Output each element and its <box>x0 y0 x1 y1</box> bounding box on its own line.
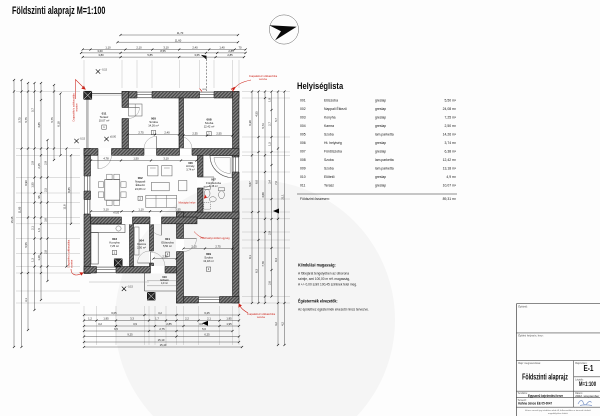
svg-text:95: 95 <box>37 195 41 198</box>
svg-text:24,08 m²: 24,08 m² <box>443 107 457 111</box>
svg-text:Terasz: Terasz <box>324 184 334 188</box>
svg-text:Földszinti alaprajz M=1:100: Földszinti alaprajz M=1:100 <box>12 5 105 17</box>
svg-text:008: 008 <box>300 158 306 162</box>
svg-text:-0,15: -0,15 <box>80 138 86 141</box>
svg-text:Mosógép helye: Mosógép helye <box>179 202 197 205</box>
svg-text:2,9: 2,9 <box>31 161 35 165</box>
svg-text:3,10: 3,10 <box>103 207 109 211</box>
svg-text:A terv szerzői jogi védelem al: A terv szerzői jogi védelem alatt áll, f… <box>525 409 591 412</box>
svg-text:010: 010 <box>300 175 306 179</box>
svg-text:vezetve: vezetve <box>259 78 268 81</box>
svg-text:6,38 m²: 6,38 m² <box>445 150 457 154</box>
svg-text:Kamra: Kamra <box>324 124 334 128</box>
svg-text:3,55: 3,55 <box>175 207 181 211</box>
svg-text:2,10: 2,10 <box>136 46 142 50</box>
svg-text:lam.parketta: lam.parketta <box>375 167 394 171</box>
svg-text:1,5: 1,5 <box>37 228 41 232</box>
svg-text:2,7: 2,7 <box>268 122 272 126</box>
svg-text:1,95: 1,95 <box>103 317 109 321</box>
svg-text:3,80: 3,80 <box>98 53 104 57</box>
svg-text:1,3: 1,3 <box>31 258 35 262</box>
svg-text:2,1: 2,1 <box>207 317 211 321</box>
svg-text:greslap: greslap <box>375 184 386 188</box>
svg-text:1,95: 1,95 <box>226 317 232 321</box>
svg-text:Káhna János ÉE 05-0047: Káhna János ÉE 05-0047 <box>518 400 552 405</box>
svg-text:3,3: 3,3 <box>130 317 134 321</box>
svg-text:lam.parketta: lam.parketta <box>375 133 394 137</box>
svg-text:3,9: 3,9 <box>133 322 137 326</box>
svg-text:vezetve: vezetve <box>71 259 74 268</box>
svg-text:3,6: 3,6 <box>199 322 203 326</box>
svg-text:005: 005 <box>300 133 306 137</box>
svg-text:vezetve: vezetve <box>76 103 79 112</box>
svg-text:3,2: 3,2 <box>158 311 162 315</box>
svg-text:1,10: 1,10 <box>138 207 144 211</box>
svg-text:greslap: greslap <box>375 116 386 120</box>
svg-text:5,75: 5,75 <box>18 117 22 123</box>
svg-text:007: 007 <box>300 150 306 154</box>
svg-text:Égéstermék elvezetők:: Égéstermék elvezetők: <box>298 298 338 304</box>
svg-text:15,40: 15,40 <box>160 343 167 347</box>
svg-text:13,18 m²: 13,18 m² <box>443 167 457 171</box>
svg-text:A főbejárat tengelyében az útk: A főbejárat tengelyében az útkorona <box>298 272 349 276</box>
svg-text:1,50: 1,50 <box>133 157 139 161</box>
svg-text:8,55: 8,55 <box>160 49 166 53</box>
svg-text:3,65: 3,65 <box>194 53 200 57</box>
svg-text:2,5: 2,5 <box>44 188 48 192</box>
svg-text:8,4: 8,4 <box>274 258 278 262</box>
svg-text:2,25: 2,25 <box>37 163 41 169</box>
svg-text:2,75: 2,75 <box>159 327 165 331</box>
svg-text:-0,15: -0,15 <box>127 286 133 289</box>
svg-text:5,55: 5,55 <box>24 242 28 248</box>
svg-text:5,7: 5,7 <box>31 108 35 112</box>
svg-text:1,9: 1,9 <box>268 98 272 102</box>
svg-text:7,78: 7,78 <box>261 261 265 267</box>
svg-text:1,40: 1,40 <box>219 46 225 50</box>
svg-text:greslap: greslap <box>375 99 386 103</box>
svg-text:6,85: 6,85 <box>67 187 71 193</box>
svg-text:Ht. helyiség: Ht. helyiség <box>324 141 342 145</box>
svg-text:001: 001 <box>300 99 306 103</box>
svg-text:11,85: 11,85 <box>18 206 22 213</box>
svg-text:004: 004 <box>300 124 306 128</box>
svg-text:4,9 m²: 4,9 m² <box>446 175 456 179</box>
svg-text:14,26 m²: 14,26 m² <box>443 133 457 137</box>
svg-text:2,50 m²: 2,50 m² <box>137 246 146 250</box>
svg-text:Előtető: Előtető <box>324 175 335 179</box>
svg-text:15,10: 15,10 <box>158 338 165 342</box>
svg-text:vezetve: vezetve <box>257 316 266 319</box>
svg-text:1,7: 1,7 <box>155 317 159 321</box>
svg-text:2,40: 2,40 <box>192 46 198 50</box>
svg-text:5,73: 5,73 <box>261 123 265 129</box>
svg-text:4,78: 4,78 <box>103 157 109 161</box>
svg-text:15,35: 15,35 <box>10 216 14 223</box>
svg-text:Kiindulási magasság:: Kiindulási magasság: <box>298 262 336 268</box>
svg-text:5,75: 5,75 <box>50 117 54 123</box>
svg-text:7,25 m²: 7,25 m² <box>110 244 119 248</box>
svg-text:4,68: 4,68 <box>261 192 265 198</box>
svg-text:4,55: 4,55 <box>255 111 259 117</box>
svg-text:5,85: 5,85 <box>147 53 153 57</box>
svg-text:12,42 m²: 12,42 m² <box>204 125 215 129</box>
svg-text:-0,15: -0,15 <box>102 68 108 71</box>
svg-text:2,35: 2,35 <box>192 132 198 136</box>
svg-text:1,5: 1,5 <box>268 142 272 146</box>
svg-text:szintje, ami 100,00 m réf. mag: szintje, ami 100,00 m réf. magasság, <box>298 277 350 281</box>
svg-text:003: 003 <box>300 116 306 120</box>
svg-text:1,95: 1,95 <box>226 322 232 326</box>
svg-text:2,1: 2,1 <box>31 226 35 230</box>
svg-text:Kamra: Kamra <box>137 242 146 246</box>
svg-text:11,60: 11,60 <box>175 38 182 42</box>
svg-text:M=1:100: M=1:100 <box>579 381 596 388</box>
svg-text:2,2: 2,2 <box>185 317 189 321</box>
svg-text:Konyha: Konyha <box>324 116 336 120</box>
svg-text:9,25: 9,25 <box>127 333 133 337</box>
svg-text:6,5: 6,5 <box>114 327 118 331</box>
svg-text:Előszoba: Előszoba <box>324 99 338 103</box>
svg-text:4,2: 4,2 <box>274 322 278 326</box>
svg-text:6,38: 6,38 <box>248 120 252 126</box>
svg-text:21,1: 21,1 <box>281 194 285 200</box>
svg-text:Fürdőszoba: Fürdőszoba <box>324 150 342 154</box>
svg-text:greslap: greslap <box>375 107 386 111</box>
svg-text:Konyha: Konyha <box>109 241 120 245</box>
svg-text:14,26 m²: 14,26 m² <box>148 124 159 128</box>
svg-text:3,4: 3,4 <box>268 180 272 184</box>
svg-text:6,3: 6,3 <box>255 269 259 273</box>
svg-text:10,07 m²: 10,07 m² <box>99 119 110 123</box>
svg-text:6,90: 6,90 <box>24 180 28 186</box>
svg-text:Rajz megnevezése:: Rajz megnevezése: <box>518 361 541 365</box>
svg-text:11,8: 11,8 <box>63 204 67 210</box>
svg-text:12,42 m²: 12,42 m² <box>443 158 457 162</box>
svg-text:13,18 m²: 13,18 m² <box>203 259 214 263</box>
svg-text:2,85: 2,85 <box>228 49 234 53</box>
svg-text:Földszinti alaprajz: Földszinti alaprajz <box>522 374 568 382</box>
svg-text:Előszoba: Előszoba <box>161 241 174 245</box>
svg-text:6,25: 6,25 <box>204 311 210 315</box>
svg-text:7,25 m²: 7,25 m² <box>445 116 457 120</box>
svg-text:+0,00: +0,00 <box>113 211 120 214</box>
svg-text:6,38 m²: 6,38 m² <box>209 185 218 188</box>
svg-text:6,05: 6,05 <box>111 311 117 315</box>
svg-text:Étkező: Étkező <box>136 182 146 187</box>
svg-text:Földszint összesen:: Földszint összesen: <box>300 197 330 201</box>
svg-text:11,70: 11,70 <box>177 31 184 35</box>
svg-text:3,1: 3,1 <box>24 298 28 302</box>
svg-text:1,10: 1,10 <box>105 46 111 50</box>
svg-text:5,6: 5,6 <box>202 327 206 331</box>
svg-text:3,60: 3,60 <box>97 49 103 53</box>
svg-text:Szoba: Szoba <box>204 256 213 260</box>
svg-text:Szoba: Szoba <box>205 121 214 125</box>
svg-text:greslap: greslap <box>375 175 386 179</box>
svg-text:greslap: greslap <box>375 124 386 128</box>
svg-text:5,50 m²: 5,50 m² <box>445 99 457 103</box>
svg-text:2022. szeptember hó: 2022. szeptember hó <box>575 394 600 398</box>
svg-text:3,2: 3,2 <box>98 322 102 326</box>
svg-text:2,85: 2,85 <box>166 322 172 326</box>
svg-text:Nappali Étkező: Nappali Étkező <box>324 106 347 111</box>
svg-text:009: 009 <box>300 167 306 171</box>
svg-text:4,9 m²: 4,9 m² <box>161 282 168 285</box>
svg-text:1,28: 1,28 <box>37 255 41 261</box>
svg-text:5,67: 5,67 <box>248 181 252 187</box>
svg-text:2,15: 2,15 <box>191 245 197 249</box>
svg-text:3,74 m²: 3,74 m² <box>445 141 457 145</box>
svg-text:6,25: 6,25 <box>204 333 210 337</box>
svg-text:5,75: 5,75 <box>24 117 28 123</box>
svg-text:greslap: greslap <box>375 150 386 154</box>
svg-text:Helyiséglista: Helyiséglista <box>297 80 343 91</box>
svg-text:±0,00: ±0,00 <box>110 135 117 138</box>
svg-text:2,30: 2,30 <box>162 255 168 259</box>
svg-text:011: 011 <box>300 184 306 188</box>
svg-text:7,0: 7,0 <box>274 181 278 185</box>
svg-text:2,9: 2,9 <box>268 231 272 235</box>
svg-text:70: 70 <box>239 46 242 50</box>
svg-text:1,2: 1,2 <box>88 317 92 321</box>
svg-text:2,50 m²: 2,50 m² <box>445 124 457 128</box>
svg-text:2,8: 2,8 <box>44 250 48 254</box>
svg-text:1,55: 1,55 <box>31 182 35 188</box>
svg-text:5,7: 5,7 <box>274 118 278 122</box>
svg-text:lam.parketta: lam.parketta <box>375 158 394 162</box>
svg-text:4,85: 4,85 <box>37 122 41 128</box>
svg-text:3,6: 3,6 <box>44 218 48 222</box>
svg-text:2,85: 2,85 <box>227 53 233 57</box>
svg-text:006: 006 <box>300 141 306 145</box>
svg-text:greslap: greslap <box>375 141 386 145</box>
svg-text:Szoba: Szoba <box>324 158 334 162</box>
svg-text:Szoba: Szoba <box>324 167 334 171</box>
svg-text:3,10: 3,10 <box>163 157 169 161</box>
svg-text:002: 002 <box>300 107 306 111</box>
svg-text:E-1: E-1 <box>583 363 594 373</box>
svg-text:Egyszerű bejelentési terve: Egyszerű bejelentési terve <box>528 393 563 397</box>
svg-text:2,75: 2,75 <box>215 245 221 249</box>
svg-text:6,18: 6,18 <box>57 121 61 127</box>
svg-text:Hőszivattyú kültéri egység: Hőszivattyú kültéri egység <box>200 237 230 240</box>
svg-text:3,10: 3,10 <box>163 46 169 50</box>
svg-text:4,2: 4,2 <box>281 322 285 326</box>
svg-text:2,75: 2,75 <box>138 131 144 135</box>
svg-text:5,50 m²: 5,50 m² <box>163 244 172 248</box>
svg-text:9,1: 9,1 <box>248 255 252 259</box>
svg-text:2,40: 2,40 <box>164 131 170 135</box>
svg-text:6,0: 6,0 <box>255 180 259 184</box>
svg-text:Szoba: Szoba <box>324 133 334 137</box>
svg-text:Szoba: Szoba <box>149 120 158 124</box>
svg-text:2,9: 2,9 <box>44 161 48 165</box>
svg-text:Terasz: Terasz <box>100 115 109 119</box>
svg-text:2,6: 2,6 <box>268 281 272 285</box>
svg-text:10,07 m²: 10,07 m² <box>443 184 457 188</box>
svg-text:89,31 m²: 89,31 m² <box>443 197 457 201</box>
svg-text:A +/- 0,00 szint 100,45 szintn: A +/- 0,00 szint 100,45 szintnek felel m… <box>298 283 357 287</box>
svg-text:3,74 m²: 3,74 m² <box>186 168 195 171</box>
svg-text:engedélyéhez kötött.: engedélyéhez kötött. <box>548 412 569 415</box>
svg-text:Az épülethez égéstermék elveze: Az épülethez égéstermék elvezető nincs t… <box>298 308 369 312</box>
svg-text:24,08 m²: 24,08 m² <box>135 187 146 191</box>
svg-text:2,55: 2,55 <box>216 132 222 136</box>
svg-text:Tervfázis:: Tervfázis: <box>518 392 528 395</box>
